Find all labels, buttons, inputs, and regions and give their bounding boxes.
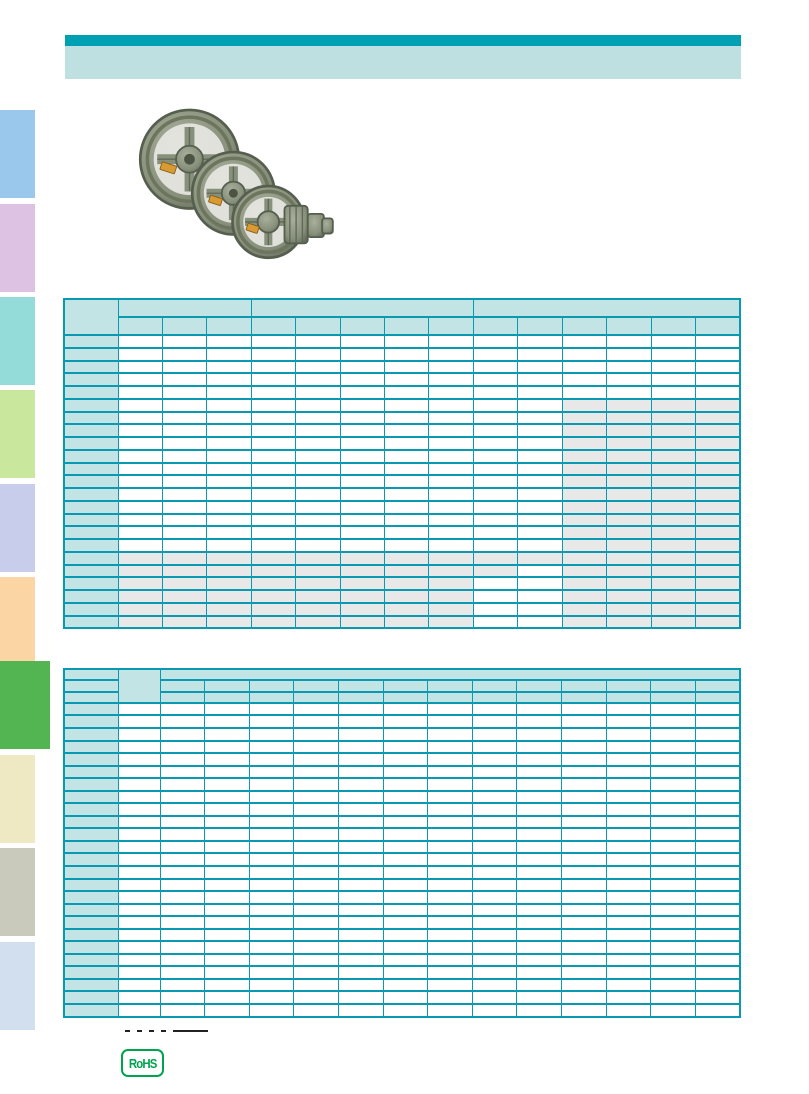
table1-row <box>64 539 740 552</box>
table2-cell <box>472 966 517 979</box>
table2-cell <box>205 1004 250 1017</box>
table1-cell <box>207 412 251 425</box>
table2-cell <box>651 728 696 741</box>
table1-cell <box>162 616 206 629</box>
table2-column-header <box>428 692 473 703</box>
table2-cell <box>561 891 606 904</box>
table2-cell <box>651 841 696 854</box>
table1-cell <box>562 361 606 374</box>
table1-cell <box>651 616 695 629</box>
table2-cell <box>249 803 294 816</box>
table2-head <box>64 669 740 703</box>
table1-cell <box>118 348 162 361</box>
table2-cell <box>160 929 205 942</box>
table1-cell <box>340 616 384 629</box>
table2-cell <box>249 766 294 779</box>
table1-group-header-row <box>64 299 740 317</box>
table1-cell <box>162 361 206 374</box>
table2-cell <box>561 929 606 942</box>
table2-cell <box>294 1004 339 1017</box>
table1-cell <box>518 386 562 399</box>
table1-cell <box>296 526 340 539</box>
table1-cell <box>607 437 651 450</box>
table2-cell <box>651 828 696 841</box>
table1-cell <box>695 616 740 629</box>
table1-cell <box>429 590 473 603</box>
table1-cell <box>695 539 740 552</box>
table1-cell <box>651 424 695 437</box>
table2-corner-cell-1 <box>64 669 118 680</box>
table2-column-header <box>606 680 651 691</box>
table1-cell <box>385 552 429 565</box>
table2-row-header <box>64 715 118 728</box>
table2-cell <box>294 916 339 929</box>
footnote-rule <box>173 1030 208 1032</box>
table1-cell <box>251 552 295 565</box>
table1-cell <box>385 412 429 425</box>
table1-cell <box>695 348 740 361</box>
table2-cell <box>695 866 740 879</box>
table1-cell <box>207 424 251 437</box>
table2-cell <box>383 1004 428 1017</box>
table1-cell <box>340 501 384 514</box>
table1-cell <box>385 526 429 539</box>
table2-cell <box>651 879 696 892</box>
table1-row <box>64 526 740 539</box>
table1-cell <box>607 361 651 374</box>
v-belt-pulleys-photo <box>125 100 340 265</box>
table1-row <box>64 577 740 590</box>
table2-cell <box>428 791 473 804</box>
table1-cell <box>385 373 429 386</box>
table1-cell <box>385 603 429 616</box>
table1-cell <box>340 399 384 412</box>
table1-cell <box>207 514 251 527</box>
rohs-label: RoHS <box>129 1056 157 1071</box>
table1-cell <box>651 577 695 590</box>
table1-cell <box>651 412 695 425</box>
table1-cell <box>518 565 562 578</box>
table2-cell <box>606 966 651 979</box>
table2-cell <box>472 979 517 992</box>
table1-cell <box>162 539 206 552</box>
table1-cell <box>118 565 162 578</box>
table2-size-cell <box>118 891 160 904</box>
table2-cell <box>338 841 383 854</box>
table1-cell <box>296 565 340 578</box>
table2-size-cell <box>118 828 160 841</box>
table1-cell <box>518 526 562 539</box>
table1-cell <box>473 463 517 476</box>
table1-cell <box>429 488 473 501</box>
table2-row <box>64 853 740 866</box>
table2-cell <box>695 703 740 716</box>
table1-cell <box>207 552 251 565</box>
table1-cell <box>695 603 740 616</box>
table2-cell <box>651 1004 696 1017</box>
table1-cell <box>651 450 695 463</box>
table1-cell <box>562 373 606 386</box>
table1-cell <box>429 565 473 578</box>
table2-cell <box>160 916 205 929</box>
table1-cell <box>473 539 517 552</box>
table2-cell <box>561 803 606 816</box>
table2-row-header <box>64 991 118 1004</box>
table2-cell <box>383 791 428 804</box>
table2-cell <box>205 791 250 804</box>
catalog-page: RoHS <box>0 0 809 1094</box>
sidebar-tab-7-active <box>0 661 50 749</box>
table2-row-header <box>64 966 118 979</box>
table2-column-header <box>561 680 606 691</box>
table1-cell <box>162 514 206 527</box>
table1-row <box>64 514 740 527</box>
table2-cell <box>695 741 740 754</box>
table2-cell <box>651 778 696 791</box>
table1-cell <box>651 399 695 412</box>
table2-cell <box>428 778 473 791</box>
table1-cell <box>562 616 606 629</box>
table2-row <box>64 803 740 816</box>
table2-cell <box>428 766 473 779</box>
table2-cell <box>517 991 562 1004</box>
table1-cell <box>296 386 340 399</box>
table1-cell <box>118 603 162 616</box>
table2-cell <box>294 791 339 804</box>
table1-cell <box>695 386 740 399</box>
table1-cell <box>473 552 517 565</box>
table2-cell <box>517 753 562 766</box>
table2-cell <box>695 803 740 816</box>
table2-cell <box>606 703 651 716</box>
table1-cell <box>118 399 162 412</box>
table2-cell <box>428 966 473 979</box>
table2-size-cell <box>118 979 160 992</box>
table2-cell <box>472 941 517 954</box>
table2-cell <box>294 703 339 716</box>
table1-cell <box>340 361 384 374</box>
table1-row-header <box>64 373 118 386</box>
table1-cell <box>207 386 251 399</box>
table2-cell <box>651 703 696 716</box>
table2-cell <box>294 879 339 892</box>
table2-cell <box>383 991 428 1004</box>
table2-cell <box>695 941 740 954</box>
table1-cell <box>340 424 384 437</box>
table2-column-header <box>695 692 740 703</box>
table2-cell <box>561 753 606 766</box>
table2-row <box>64 778 740 791</box>
table1-cell <box>207 577 251 590</box>
table2-cell <box>517 828 562 841</box>
table2-cell <box>338 753 383 766</box>
table1-row <box>64 373 740 386</box>
table1-cell <box>251 348 295 361</box>
table1-corner-cell <box>64 299 118 335</box>
table2-cell <box>160 954 205 967</box>
table2-cell <box>383 778 428 791</box>
table1-cell <box>429 361 473 374</box>
table1-cell <box>429 552 473 565</box>
table2-cell <box>338 791 383 804</box>
table2-cell <box>472 1004 517 1017</box>
table2-cell <box>517 1004 562 1017</box>
table2-cell <box>428 816 473 829</box>
table1-cell <box>429 463 473 476</box>
table2-cell <box>205 828 250 841</box>
table1-cell <box>429 437 473 450</box>
table2-size-cell <box>118 803 160 816</box>
table1-cell <box>562 348 606 361</box>
table2-cell <box>606 791 651 804</box>
table1-cell <box>118 577 162 590</box>
table2-cell <box>606 916 651 929</box>
table2-cell <box>294 929 339 942</box>
table1-cell <box>695 335 740 348</box>
table1-cell <box>340 514 384 527</box>
table1-row <box>64 386 740 399</box>
footnote-dash <box>137 1030 142 1032</box>
table2-cell <box>338 979 383 992</box>
table1-cell <box>251 386 295 399</box>
table1-cell <box>607 335 651 348</box>
table2-size-cell <box>118 916 160 929</box>
table1-cell <box>518 475 562 488</box>
table1-cell <box>651 386 695 399</box>
table1-cell <box>607 450 651 463</box>
table2-column-header <box>338 680 383 691</box>
table2-size-column-header <box>118 669 160 703</box>
table2-row <box>64 766 740 779</box>
table1-cell <box>518 590 562 603</box>
table2-cell <box>383 853 428 866</box>
table2-cell <box>205 803 250 816</box>
table1-cell <box>296 590 340 603</box>
table2-size-cell <box>118 816 160 829</box>
table2-cell <box>561 991 606 1004</box>
table2-cell <box>338 954 383 967</box>
table2-cell <box>606 891 651 904</box>
table2-group-band <box>160 669 740 680</box>
table2-cell <box>606 941 651 954</box>
table1-cell <box>340 348 384 361</box>
sidebar-tab-2 <box>0 204 35 292</box>
table2-cell <box>383 916 428 929</box>
table2-cell <box>383 741 428 754</box>
table2-cell <box>517 929 562 942</box>
table2-cell <box>695 891 740 904</box>
table1-group-header-2 <box>251 299 473 317</box>
table2-cell <box>651 966 696 979</box>
table1-cell <box>429 450 473 463</box>
table1-cell <box>251 590 295 603</box>
table1-cell <box>429 335 473 348</box>
table2-cell <box>472 879 517 892</box>
table1-cell <box>695 514 740 527</box>
table2-cell <box>294 766 339 779</box>
table1-cell <box>651 526 695 539</box>
table1-cell <box>207 526 251 539</box>
table2-row-header <box>64 904 118 917</box>
table1-cell <box>607 616 651 629</box>
table2-row-header <box>64 778 118 791</box>
table2-cell <box>294 816 339 829</box>
table1-cell <box>473 412 517 425</box>
table1-column-header-row <box>64 317 740 335</box>
table2-cell <box>249 828 294 841</box>
table1-cell <box>118 424 162 437</box>
table2-cell <box>651 866 696 879</box>
table2-cell <box>205 866 250 879</box>
table2-cell <box>651 741 696 754</box>
table2-cell <box>160 891 205 904</box>
table2-cell <box>428 904 473 917</box>
table1-row-header <box>64 399 118 412</box>
table1-row <box>64 501 740 514</box>
table1-row-header <box>64 475 118 488</box>
table1-cell <box>607 386 651 399</box>
table2-cell <box>428 715 473 728</box>
table2-column-header <box>205 692 250 703</box>
table1-cell <box>562 386 606 399</box>
table1-cell <box>340 565 384 578</box>
table2-row-header <box>64 941 118 954</box>
table1-cell <box>473 386 517 399</box>
table1-cell <box>651 335 695 348</box>
table2-cell <box>160 841 205 854</box>
table2-cell <box>651 753 696 766</box>
table1-row <box>64 565 740 578</box>
table1-cell <box>518 616 562 629</box>
table2-cell <box>160 803 205 816</box>
table2-cell <box>651 853 696 866</box>
table1-cell <box>429 501 473 514</box>
table1-cell <box>385 424 429 437</box>
table2-cell <box>606 879 651 892</box>
table2-cell <box>205 916 250 929</box>
table1-cell <box>429 539 473 552</box>
table2-cell <box>294 715 339 728</box>
table2-cell <box>338 803 383 816</box>
table2-cell <box>606 929 651 942</box>
table1-row <box>64 488 740 501</box>
table2-cell <box>160 941 205 954</box>
table2-cell <box>651 891 696 904</box>
table2-cell <box>472 991 517 1004</box>
table1-cell <box>562 399 606 412</box>
table2-cell <box>472 904 517 917</box>
table1-cell <box>518 450 562 463</box>
table2-cell <box>249 753 294 766</box>
table1-cell <box>207 361 251 374</box>
table2-cell <box>606 766 651 779</box>
table2-cell <box>205 753 250 766</box>
table2-cell <box>383 703 428 716</box>
table1-cell <box>385 590 429 603</box>
table1-cell <box>162 412 206 425</box>
table1-cell <box>296 514 340 527</box>
table1-cell <box>607 463 651 476</box>
table2-cell <box>249 816 294 829</box>
table1-cell <box>385 488 429 501</box>
table2-cell <box>249 941 294 954</box>
table2-cell <box>651 954 696 967</box>
table2-row-header <box>64 841 118 854</box>
table2-cell <box>517 778 562 791</box>
table1-column-header <box>695 317 740 335</box>
table1-row <box>64 590 740 603</box>
table2-cell <box>695 954 740 967</box>
table2-column-header <box>160 692 205 703</box>
table1-cell <box>162 348 206 361</box>
table1-cell <box>562 450 606 463</box>
table1-cell <box>385 577 429 590</box>
table2-row <box>64 941 740 954</box>
subtitle-bar <box>65 46 741 79</box>
table1-cell <box>340 552 384 565</box>
table1-row-header <box>64 488 118 501</box>
table2-cell <box>160 979 205 992</box>
table1-cell <box>118 450 162 463</box>
table1-row-header <box>64 552 118 565</box>
table1-cell <box>340 590 384 603</box>
table1-row-header <box>64 539 118 552</box>
table2-cell <box>338 991 383 1004</box>
table2-cell <box>205 891 250 904</box>
table2-header-row-1 <box>64 669 740 680</box>
table1-cell <box>473 361 517 374</box>
table1-cell <box>651 463 695 476</box>
table2-cell <box>472 715 517 728</box>
table2-cell <box>472 728 517 741</box>
sidebar-tab-8 <box>0 755 35 843</box>
table2-cell <box>249 853 294 866</box>
table1-cell <box>340 539 384 552</box>
table1-cell <box>695 450 740 463</box>
table1-row-header <box>64 616 118 629</box>
table2-size-cell <box>118 1004 160 1017</box>
table1-cell <box>385 335 429 348</box>
table2-row <box>64 991 740 1004</box>
table1-cell <box>296 424 340 437</box>
table2-cell <box>695 916 740 929</box>
stepped-boss <box>284 206 332 244</box>
table2-cell <box>651 803 696 816</box>
table2-cell <box>517 941 562 954</box>
table2-cell <box>561 715 606 728</box>
table1-cell <box>429 373 473 386</box>
table1-cell <box>296 412 340 425</box>
table2-cell <box>249 1004 294 1017</box>
table2-column-header <box>160 680 205 691</box>
table1-cell <box>251 437 295 450</box>
table1-cell <box>296 577 340 590</box>
table2-size-cell <box>118 929 160 942</box>
table2-cell <box>338 816 383 829</box>
table2-row <box>64 703 740 716</box>
table2-cell <box>428 954 473 967</box>
table1-cell <box>118 373 162 386</box>
table2-row-header <box>64 728 118 741</box>
table2-size-cell <box>118 753 160 766</box>
table2-cell <box>651 816 696 829</box>
table1-cell <box>296 348 340 361</box>
table1-cell <box>296 616 340 629</box>
table2-cell <box>695 841 740 854</box>
table1-cell <box>695 412 740 425</box>
table2-cell <box>472 954 517 967</box>
table2-cell <box>695 853 740 866</box>
